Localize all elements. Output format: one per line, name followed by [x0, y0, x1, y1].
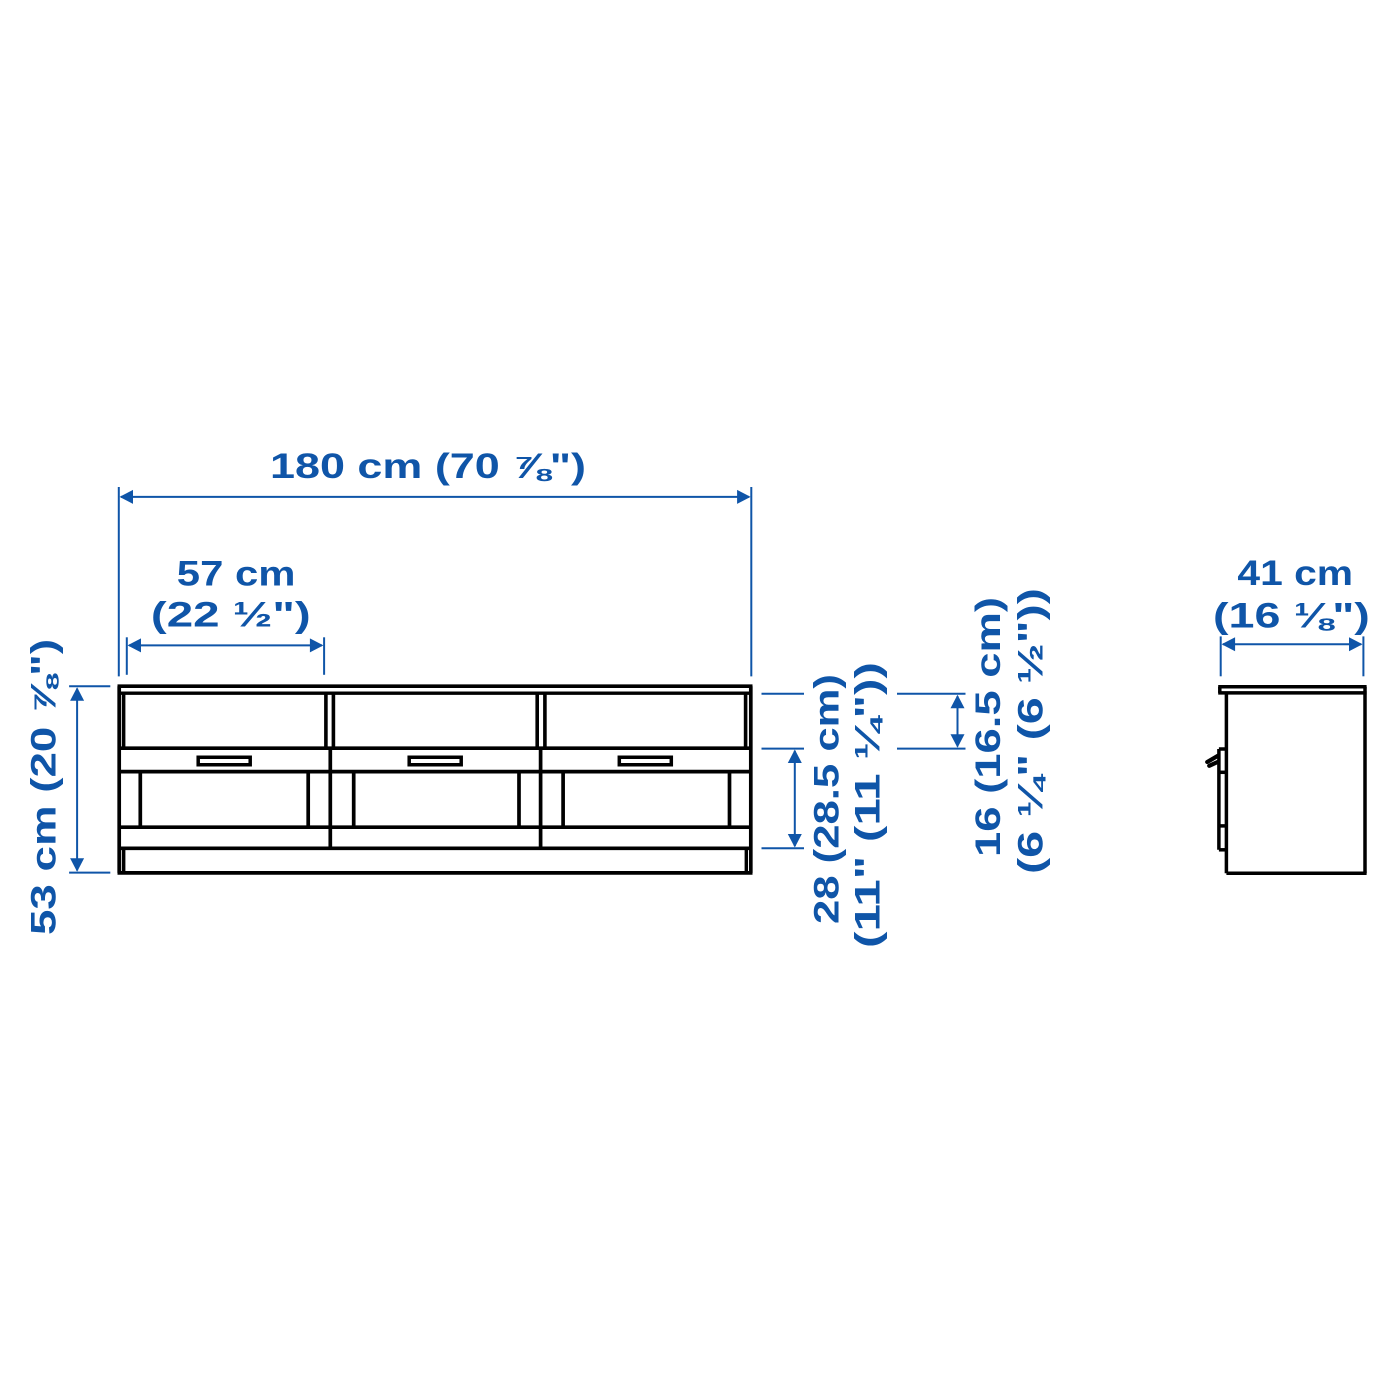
svg-text:16 (16.5 cm): 16 (16.5 cm) [969, 597, 1008, 857]
svg-text:(16 ⅛"): (16 ⅛") [1213, 597, 1370, 636]
svg-text:28 (28.5 cm): 28 (28.5 cm) [808, 674, 847, 924]
svg-text:180 cm (70 ⅞"): 180 cm (70 ⅞") [270, 447, 586, 486]
svg-text:(11" (11 ¼")): (11" (11 ¼")) [849, 662, 888, 948]
svg-text:57 cm: 57 cm [177, 555, 296, 594]
svg-text:(22 ½"): (22 ½") [151, 596, 311, 635]
svg-text:53 cm (20 ⅞"): 53 cm (20 ⅞") [25, 639, 64, 935]
svg-text:41 cm: 41 cm [1237, 554, 1353, 593]
svg-text:(6 ¼" (6 ½")): (6 ¼" (6 ½")) [1012, 588, 1051, 874]
